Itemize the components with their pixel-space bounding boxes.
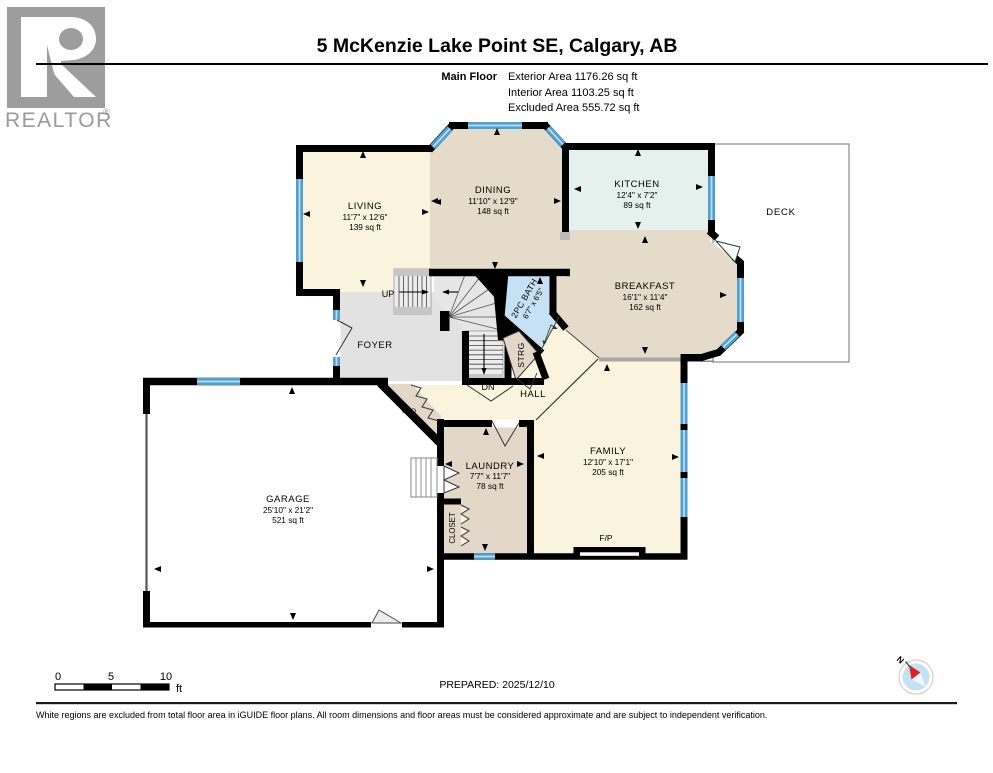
svg-text:521 sq ft: 521 sq ft <box>272 515 305 525</box>
svg-text:148 sq ft: 148 sq ft <box>477 206 510 216</box>
svg-text:5: 5 <box>108 671 114 683</box>
svg-text:89 sq ft: 89 sq ft <box>623 200 651 210</box>
svg-text:UP: UP <box>382 289 395 299</box>
svg-text:11'7" x 12'6": 11'7" x 12'6" <box>343 212 388 222</box>
svg-text:White regions are excluded fro: White regions are excluded from total fl… <box>36 710 767 720</box>
svg-text:BREAKFAST: BREAKFAST <box>615 281 675 292</box>
svg-text:PREPARED: 2025/12/10: PREPARED: 2025/12/10 <box>439 679 555 691</box>
svg-text:5 McKenzie Lake Point SE, Calg: 5 McKenzie Lake Point SE, Calgary, AB <box>317 35 678 57</box>
svg-text:DINING: DINING <box>475 185 511 196</box>
svg-text:FOYER: FOYER <box>357 340 392 351</box>
svg-text:REALTOR: REALTOR <box>5 109 113 132</box>
svg-text:Main Floor: Main Floor <box>441 71 497 83</box>
svg-text:25'10" x 21'2": 25'10" x 21'2" <box>263 505 313 515</box>
svg-text:CLO: CLO <box>402 408 416 415</box>
svg-text:10: 10 <box>160 671 172 683</box>
svg-text:ft: ft <box>176 683 182 695</box>
svg-text:DN: DN <box>482 382 495 392</box>
svg-text:F/P: F/P <box>599 533 613 543</box>
svg-text:Excluded Area 555.72 sq ft: Excluded Area 555.72 sq ft <box>508 102 639 114</box>
svg-text:HALL: HALL <box>520 389 546 400</box>
svg-text:Interior Area 1103.25 sq ft: Interior Area 1103.25 sq ft <box>508 87 634 99</box>
svg-text:7'7" x 11'7": 7'7" x 11'7" <box>470 471 510 481</box>
svg-text:STRG: STRG <box>516 342 526 367</box>
svg-text:205 sq ft: 205 sq ft <box>592 467 625 477</box>
svg-text:Exterior Area 1176.26 sq ft: Exterior Area 1176.26 sq ft <box>508 71 637 83</box>
svg-text:0: 0 <box>55 671 61 683</box>
svg-text:12'4" x 7'2": 12'4" x 7'2" <box>617 190 658 200</box>
svg-text:LIVING: LIVING <box>348 201 382 212</box>
svg-text:CLOSET: CLOSET <box>448 512 457 543</box>
svg-text:KITCHEN: KITCHEN <box>614 179 659 190</box>
svg-text:DECK: DECK <box>766 207 796 218</box>
svg-text:139 sq ft: 139 sq ft <box>349 222 382 232</box>
svg-text:12'10" x 17'1": 12'10" x 17'1" <box>583 457 633 467</box>
svg-text:162 sq ft: 162 sq ft <box>629 302 662 312</box>
svg-text:11'10" x 12'9": 11'10" x 12'9" <box>468 196 518 206</box>
svg-text:16'1" x 11'4": 16'1" x 11'4" <box>623 292 668 302</box>
svg-text:78 sq ft: 78 sq ft <box>476 481 504 491</box>
svg-text:®: ® <box>103 107 110 117</box>
svg-text:GARAGE: GARAGE <box>266 494 310 505</box>
svg-text:FAMILY: FAMILY <box>590 446 626 457</box>
